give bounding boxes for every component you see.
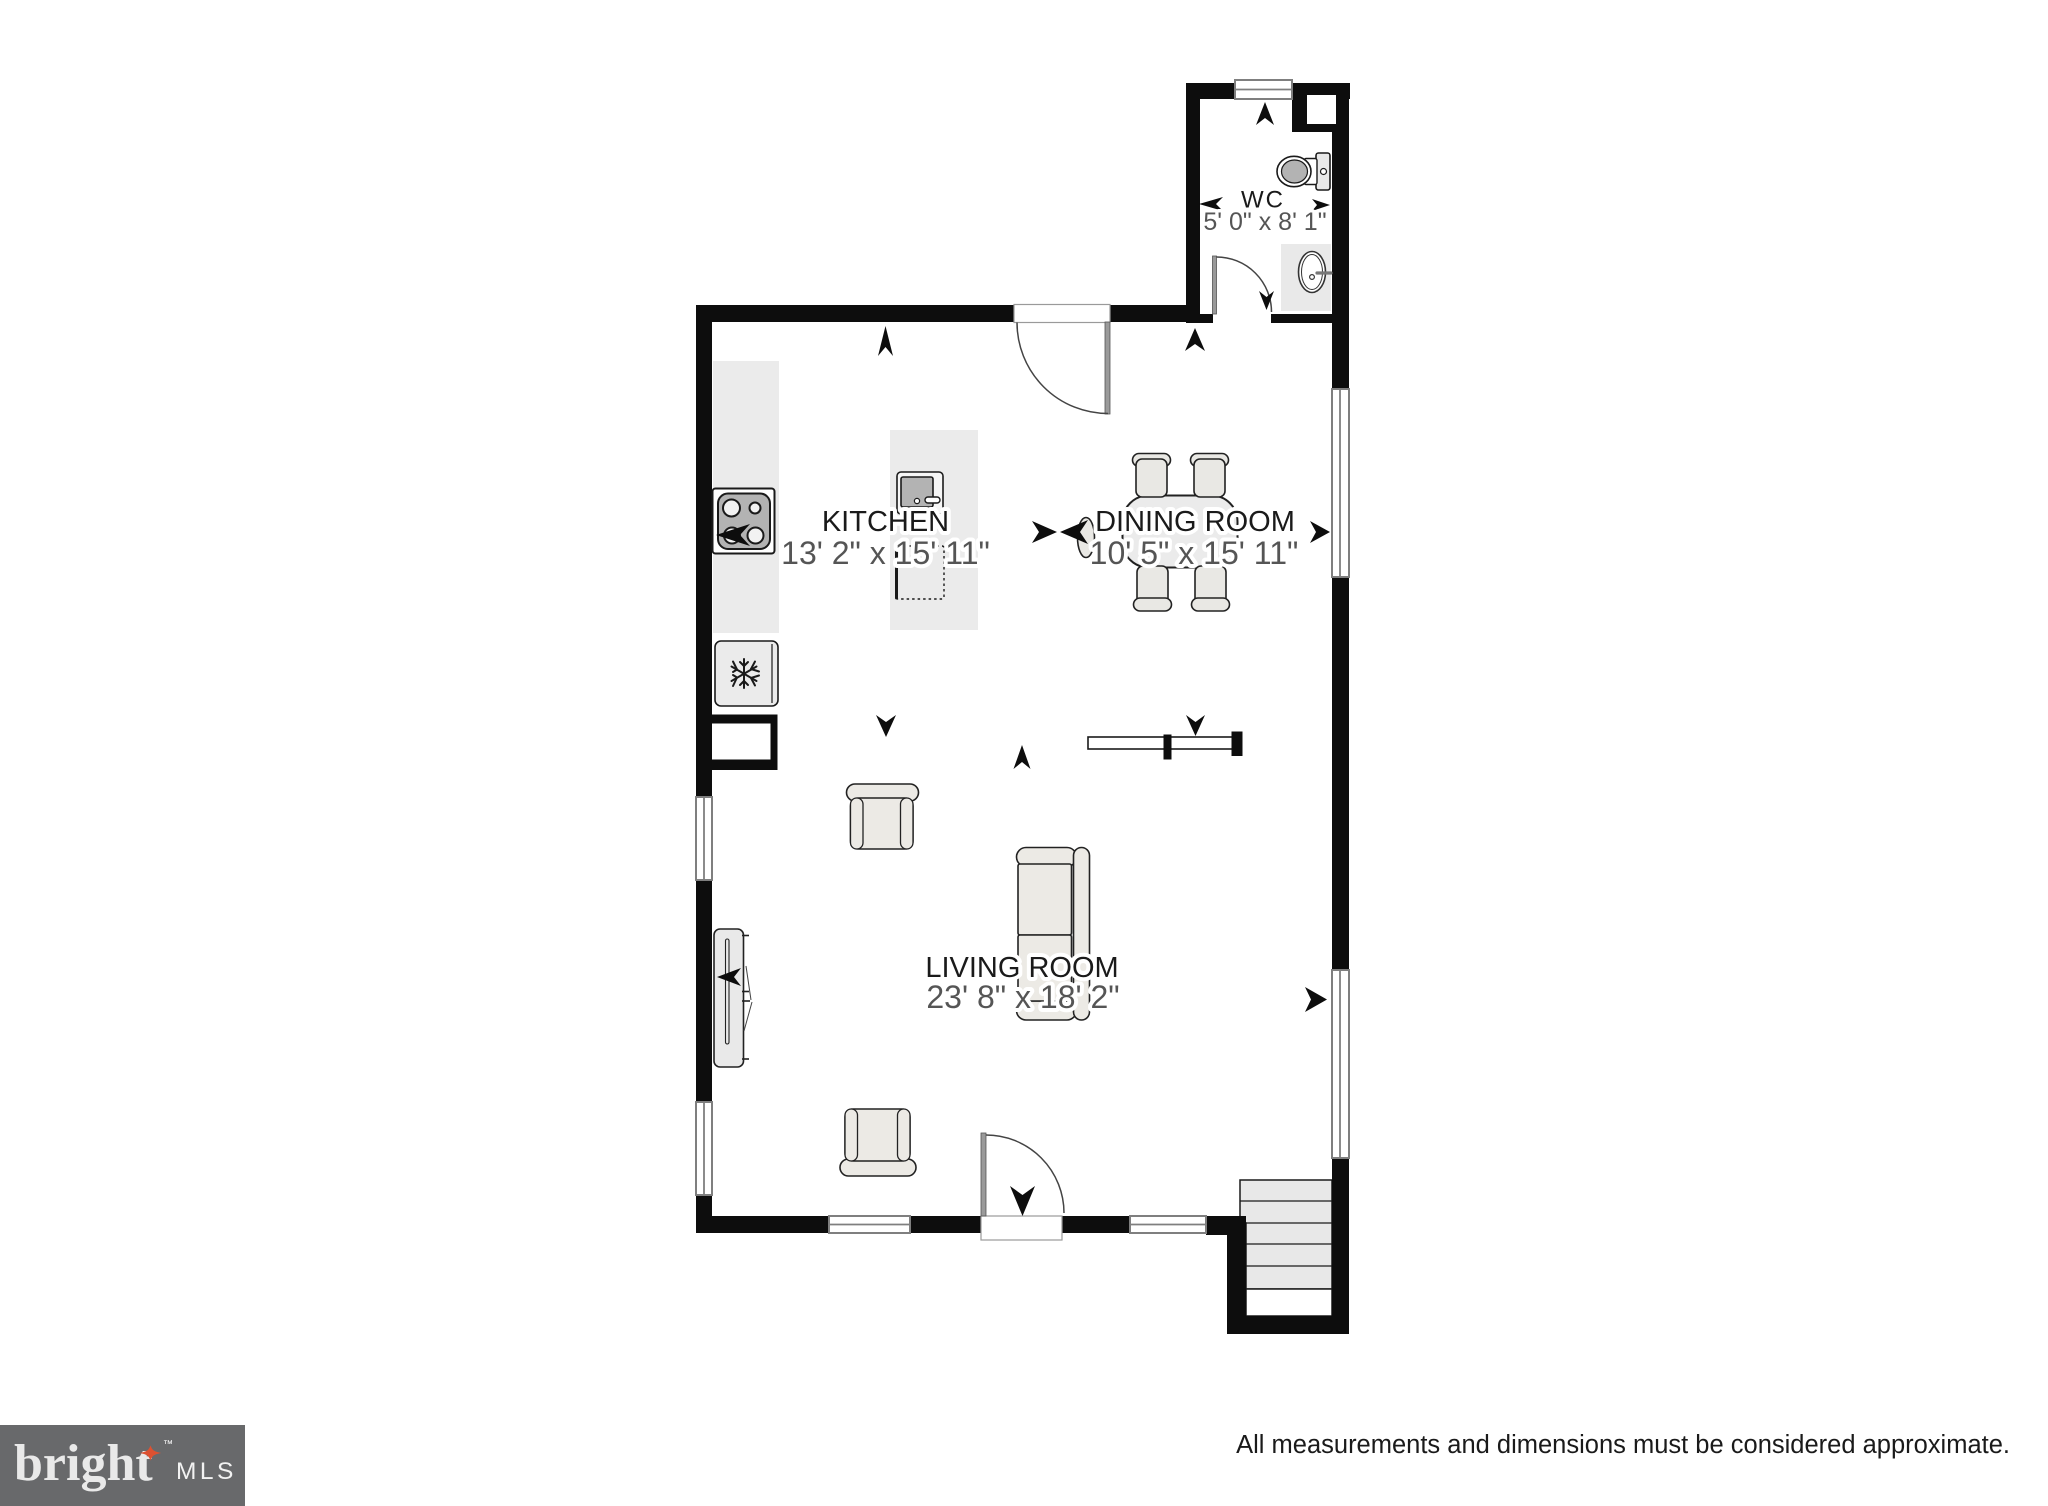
svg-text:KITCHEN: KITCHEN <box>822 506 949 538</box>
svg-text:5' 0" x 8' 1": 5' 0" x 8' 1" <box>1203 208 1326 236</box>
svg-text:DINING ROOM: DINING ROOM <box>1095 506 1295 538</box>
svg-text:All measurements and dimension: All measurements and dimensions must be … <box>1236 1431 2010 1459</box>
svg-text:10' 5" x 15' 11": 10' 5" x 15' 11" <box>1090 535 1299 571</box>
svg-text:23' 8" x 18' 2": 23' 8" x 18' 2" <box>926 979 1119 1015</box>
svg-text:13' 2" x 15' 11": 13' 2" x 15' 11" <box>781 535 990 571</box>
svg-text:bright: bright <box>14 1435 153 1492</box>
svg-text:MLS: MLS <box>176 1458 237 1485</box>
svg-text:™: ™ <box>163 1439 173 1450</box>
